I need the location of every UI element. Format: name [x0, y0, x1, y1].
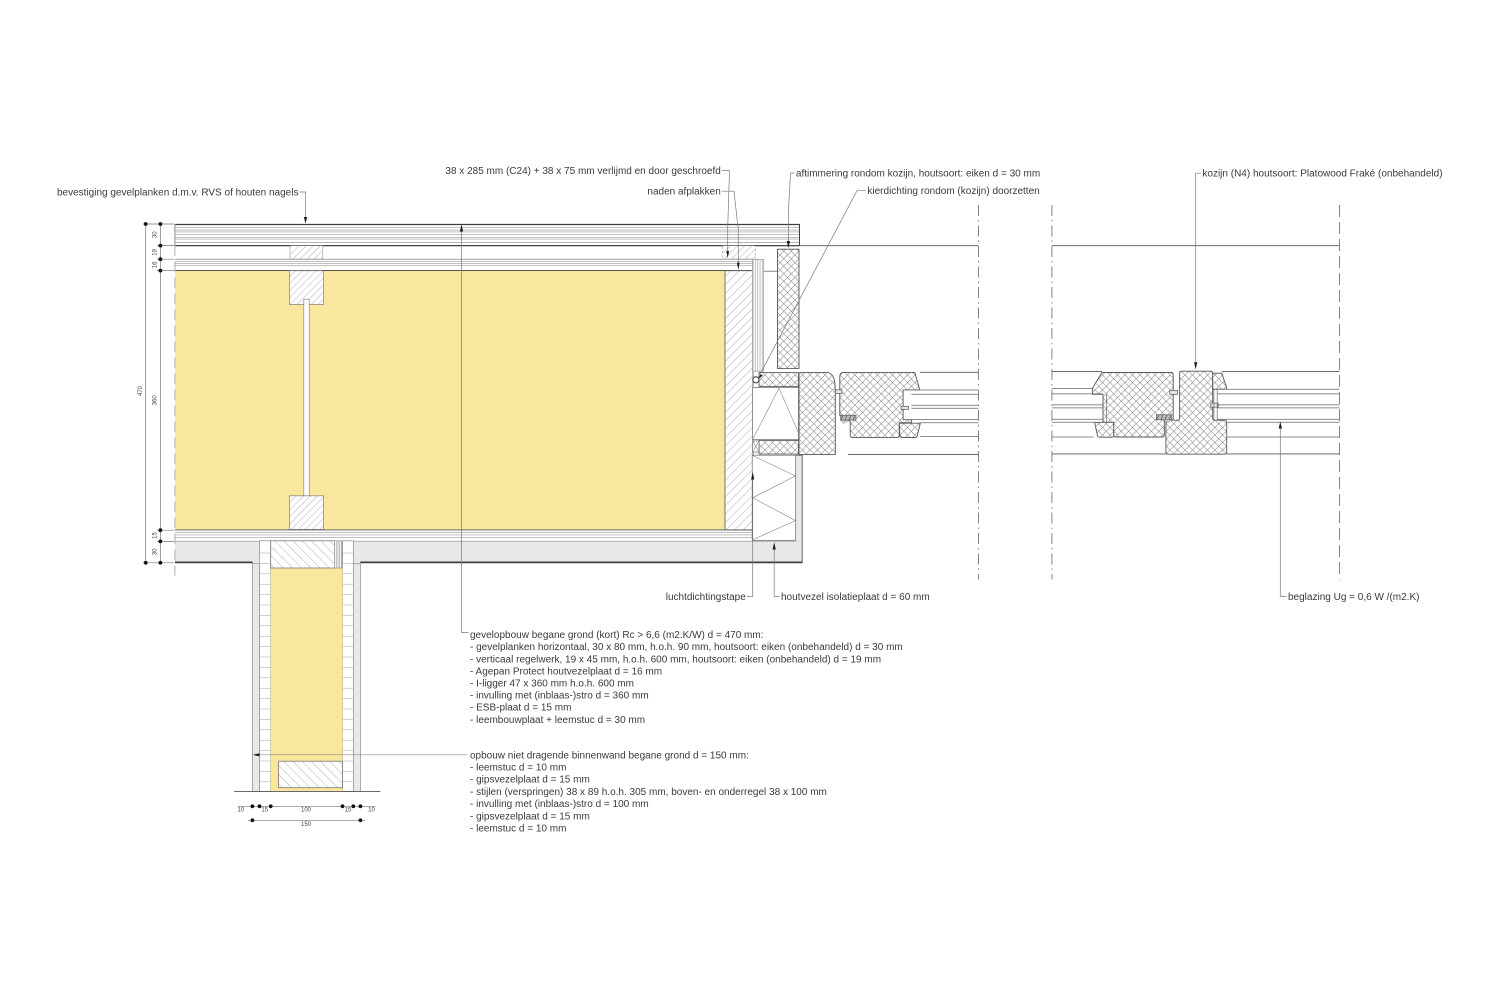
svg-text:beglazing Ug = 0,6 W /(m2.K): beglazing Ug = 0,6 W /(m2.K) [1288, 592, 1419, 603]
svg-text:- leemstuc d = 10 mm: - leemstuc d = 10 mm [470, 763, 566, 774]
svg-text:16: 16 [153, 261, 159, 268]
svg-text:15: 15 [153, 532, 159, 539]
svg-text:gevelopbouw begane grond (kort: gevelopbouw begane grond (kort) Rc > 6,6… [470, 630, 763, 641]
svg-text:kozijn (N4) houtsoort: Platowo: kozijn (N4) houtsoort: Platowood Fraké (… [1202, 169, 1442, 180]
svg-text:- invulling met (inblaas-)stro: - invulling met (inblaas-)stro d = 100 m… [470, 799, 649, 810]
svg-text:10: 10 [238, 807, 245, 813]
svg-text:- gipsvezelplaat d = 15 mm: - gipsvezelplaat d = 15 mm [470, 811, 590, 822]
svg-text:- gevelplanken horizontaal, 30: - gevelplanken horizontaal, 30 x 80 mm, … [470, 642, 903, 653]
svg-text:- Agepan Protect houtvezelplaa: - Agepan Protect houtvezelplaat d = 16 m… [470, 667, 662, 678]
svg-text:- invulling met (inblaas-)stro: - invulling met (inblaas-)stro d = 360 m… [470, 690, 649, 701]
svg-text:- stijlen (verspringen) 38 x 8: - stijlen (verspringen) 38 x 89 h.o.h. 3… [470, 787, 827, 798]
svg-text:100: 100 [301, 807, 312, 813]
svg-text:naden afplakken: naden afplakken [647, 187, 720, 198]
svg-text:- leemstuc d = 10 mm: - leemstuc d = 10 mm [470, 823, 566, 834]
svg-text:- gipsvezelplaat d = 15 mm: - gipsvezelplaat d = 15 mm [470, 775, 590, 786]
svg-text:kierdichting rondom (kozijn) d: kierdichting rondom (kozijn) doorzetten [867, 186, 1039, 197]
svg-text:- verticaal regelwerk, 19 x 45: - verticaal regelwerk, 19 x 45 mm, h.o.h… [470, 654, 881, 665]
svg-text:15: 15 [261, 807, 268, 813]
svg-text:- leembouwplaat + leemstuc d =: - leembouwplaat + leemstuc d = 30 mm [470, 715, 645, 726]
svg-text:bevestiging gevelplanken d.m.v: bevestiging gevelplanken d.m.v. RVS of h… [57, 188, 298, 199]
svg-text:aftimmering rondom kozijn, hou: aftimmering rondom kozijn, houtsoort: ei… [796, 169, 1040, 180]
svg-text:opbouw niet dragende binnenwan: opbouw niet dragende binnenwand begane g… [470, 751, 749, 762]
svg-text:15: 15 [345, 807, 352, 813]
svg-text:360: 360 [153, 395, 159, 406]
svg-text:luchtdichtingstape: luchtdichtingstape [666, 592, 746, 603]
svg-text:150: 150 [301, 822, 312, 828]
svg-text:houtvezel isolatieplaat d = 60: houtvezel isolatieplaat d = 60 mm [781, 592, 930, 603]
svg-text:30: 30 [153, 548, 159, 555]
svg-text:- ESB-plaat d = 15 mm: - ESB-plaat d = 15 mm [470, 703, 571, 714]
svg-text:470: 470 [138, 385, 144, 396]
svg-text:19: 19 [153, 248, 159, 255]
svg-text:- I-ligger 47 x 360 mm h.o.h.: - I-ligger 47 x 360 mm h.o.h. 600 mm [470, 679, 634, 690]
svg-text:10: 10 [368, 807, 375, 813]
svg-text:38 x 285 mm (C24) + 38 x 75 mm: 38 x 285 mm (C24) + 38 x 75 mm verlijmd … [445, 166, 720, 177]
svg-text:30: 30 [153, 231, 159, 238]
